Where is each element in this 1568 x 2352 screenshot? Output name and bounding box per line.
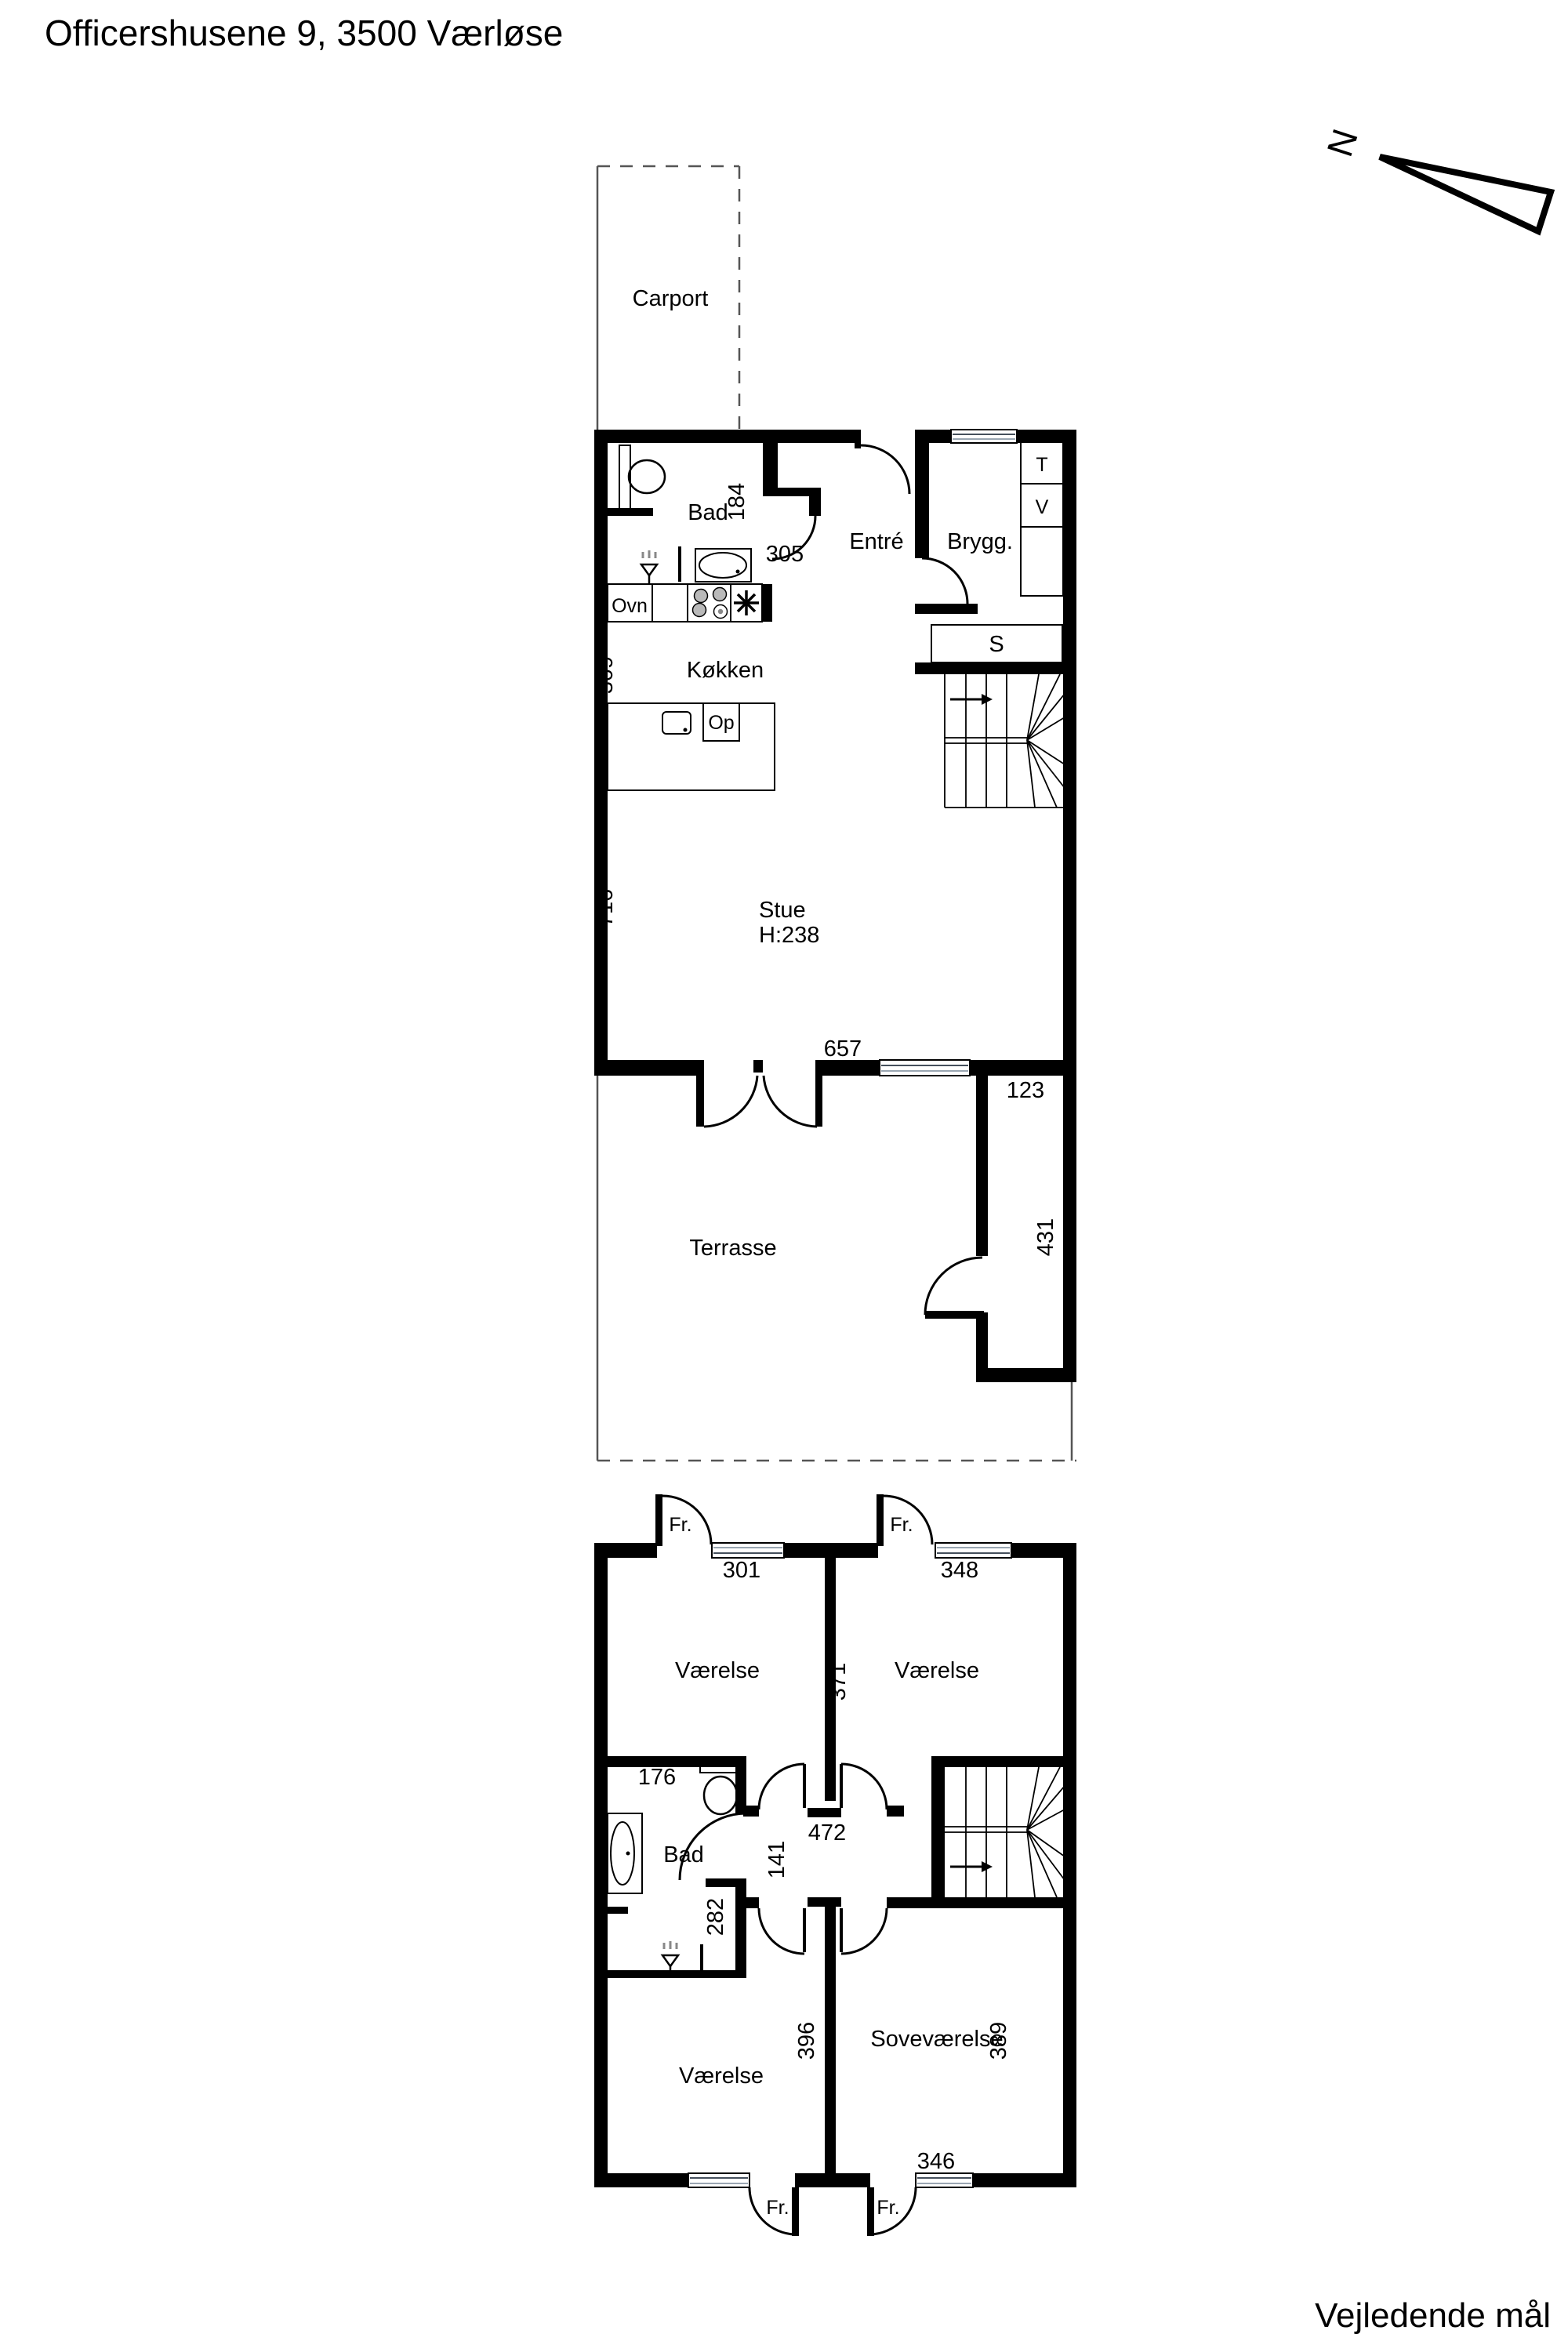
dim-282: 282 [703,1898,728,1936]
window-room-ne [935,1543,1011,1558]
dim-346: 346 [917,2149,955,2174]
room-label-bad-ff: Bad [663,1842,704,1867]
room-sw-door-arc [759,1908,804,1954]
window-room-nw [712,1543,784,1558]
stair-winders [1027,674,1065,808]
dim-305: 305 [766,542,804,567]
room-label-kokken: Køkken [687,658,764,683]
terrasse-outline [597,1072,1076,1461]
terrasse-french-door-left-arc [704,1076,757,1127]
ground-floor-doors [704,445,982,1315]
first-floor-bad-fixtures [608,1766,741,1970]
extractor-icon [734,590,759,615]
door-label-fr-se: Fr. [877,2197,899,2219]
stue-ceiling-height: H:238 [759,923,819,948]
room-label-vaerelse-ne: Værelse [895,1658,979,1683]
floor-drain-icon [641,550,657,583]
room-label-vaerelse-sw: Værelse [679,2063,764,2089]
dim-348: 348 [941,1558,978,1583]
room-label-carport: Carport [633,286,709,311]
stair-winders-ff [1027,1767,1065,1897]
dim-141: 141 [764,1841,789,1878]
dim-301: 301 [723,1558,760,1583]
dim-716: 716 [593,889,618,927]
kitchen-island [608,703,775,790]
terrasse-french-door-right-arc [764,1076,817,1127]
room-nw-door-arc [759,1764,804,1809]
room-label-sovevaerelse: Soveværelse [870,2027,1003,2052]
washbasin-icon [695,549,751,582]
window-bedroom [916,2173,973,2187]
bryggers-door-arc [922,558,967,604]
ground-floor-stairs [945,674,1065,808]
compass-north-label: N [1319,124,1366,162]
dim-431: 431 [1033,1218,1058,1256]
first-floor-stairs [945,1767,1065,1897]
annex-door-arc [925,1258,982,1315]
ground-floor-windows [880,430,1017,1076]
dim-371: 371 [826,1663,851,1700]
room-label-entre: Entré [849,529,903,554]
bedroom-door-arc [841,1908,887,1954]
bathtub-icon [608,1813,642,1893]
first-floor-plan: Fr. Fr. 301 348 Værelse Værelse 371 176 … [594,1494,1076,2236]
ground-floor-plan: Carport Terrasse [593,166,1076,1461]
stove-burners-icon [693,588,728,619]
fixture-label-dishwasher: Op [708,712,734,734]
page-title: Officershusene 9, 3500 Værløse [45,13,563,53]
dim-123: 123 [1007,1078,1044,1103]
first-floor-windows [688,1543,1011,2187]
dim-176: 176 [638,1765,676,1790]
fixture-label-closet: S [989,632,1004,657]
window-room-sw [688,2173,750,2187]
window-bryggers [951,430,1017,443]
room-label-vaerelse-nw: Værelse [675,1658,760,1683]
dim-472: 472 [808,1820,846,1846]
dim-657: 657 [824,1036,862,1062]
toilet-icon [619,445,665,510]
room-label-terrasse: Terrasse [689,1236,776,1261]
room-label-bad-gf: Bad [688,500,728,525]
floor-drain-icon-ff [662,1941,678,1970]
ground-floor-walls [594,430,1076,1382]
door-label-fr-nw: Fr. [669,1514,691,1536]
fixture-label-dryer: T [1036,454,1047,476]
fixture-label-oven: Ovn [612,595,648,617]
dim-184: 184 [724,483,750,521]
entre-front-door-arc [861,445,909,494]
footer-note: Vejledende mål [1315,2296,1551,2335]
room-label-bryggers: Brygg. [947,529,1013,554]
door-label-fr-ne: Fr. [890,1514,913,1536]
floorplan-page: Officershusene 9, 3500 Værløse Vejledend… [0,0,1568,2352]
room-label-stue: Stue [759,898,806,923]
fixture-label-washer: V [1036,496,1049,518]
window-stue [880,1060,970,1076]
toilet-icon-ff [700,1766,741,1814]
floorplan-drawing: Officershusene 9, 3500 Værløse Vejledend… [0,0,1568,2352]
door-label-fr-sw: Fr. [766,2197,789,2219]
compass-north-arrow: N [1319,124,1551,231]
room-ne-door-arc [841,1764,887,1809]
dim-309: 309 [593,656,618,694]
dim-396: 396 [794,2022,819,2060]
